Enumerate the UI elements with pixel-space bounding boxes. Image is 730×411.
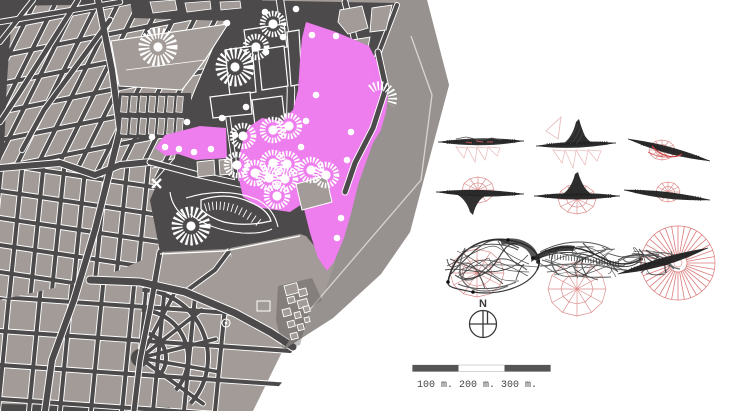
svg-text:100 m. 200 m. 300 m.: 100 m. 200 m. 300 m. xyxy=(417,380,537,391)
svg-text:N: N xyxy=(479,298,487,310)
